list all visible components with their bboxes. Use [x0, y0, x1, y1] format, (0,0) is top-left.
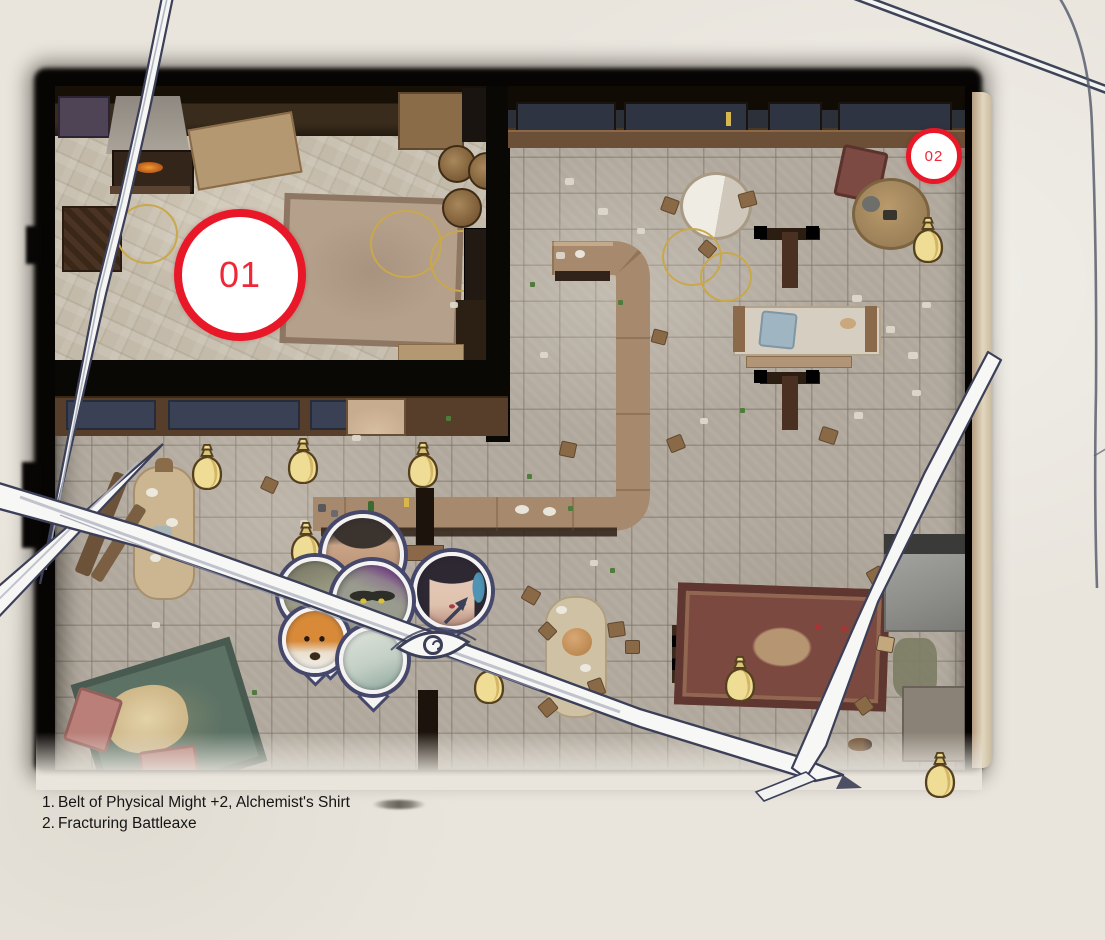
debris [590, 560, 598, 566]
chair [660, 196, 680, 216]
bar-candle [404, 498, 409, 507]
money-bag-icon[interactable] [470, 658, 508, 704]
chair [559, 441, 578, 459]
debris [527, 474, 532, 479]
debris [252, 690, 257, 695]
bar-plate [543, 507, 556, 516]
desk [398, 92, 464, 150]
bar-plate [575, 250, 585, 258]
plate [556, 606, 567, 614]
money-bag-icon[interactable] [909, 217, 947, 263]
table-end [733, 306, 745, 352]
debris [637, 228, 645, 234]
bed-headboard [884, 534, 965, 554]
debris [852, 295, 862, 302]
debris [618, 300, 623, 305]
bar-plate [515, 505, 529, 514]
table-handle [155, 458, 173, 472]
debris [466, 644, 471, 649]
loot-marker-01[interactable]: 01 [174, 209, 306, 341]
table-item [840, 318, 856, 329]
frame-line-right [1057, 0, 1105, 588]
debris [446, 416, 451, 421]
fireplace-mantle [110, 186, 190, 194]
dark-table [62, 206, 122, 272]
legend-number: 2. [42, 815, 55, 832]
money-bag-icon[interactable] [188, 444, 226, 490]
debris [530, 282, 535, 287]
long-table [545, 596, 607, 718]
money-bag-icon[interactable] [721, 656, 759, 702]
bar-bottle [368, 501, 374, 512]
bench [746, 356, 852, 368]
pillar [782, 232, 798, 288]
debris [540, 352, 548, 358]
candle [726, 112, 731, 126]
local-map-page: 0102 1.Belt of Physical Might +2, Alchem… [0, 0, 1105, 940]
chair [625, 640, 640, 654]
legend-number: 1. [42, 794, 55, 811]
debris [230, 560, 239, 566]
pale-creature-portrait[interactable] [339, 626, 407, 694]
legend-label: Belt of Physical Might +2, Alchemist's S… [58, 794, 350, 811]
red-carpet [674, 582, 890, 711]
debris [912, 390, 921, 396]
fallen-chandelier [116, 204, 178, 264]
loot-marker-02[interactable]: 02 [906, 128, 962, 184]
pillar-cap [806, 226, 819, 239]
wall-counter [508, 130, 965, 148]
chair [737, 190, 757, 209]
pillar [782, 376, 798, 430]
pillar-cap [754, 370, 767, 383]
debris [854, 412, 863, 419]
chair [818, 426, 839, 446]
pillar-cap [754, 226, 767, 239]
debris [598, 208, 608, 215]
debris [740, 408, 745, 413]
table-item [883, 210, 897, 220]
money-bag-icon[interactable] [404, 442, 442, 488]
legend-item: 1.Belt of Physical Might +2, Alchemist's… [42, 792, 353, 813]
barrel [442, 188, 482, 228]
chair [260, 475, 280, 494]
debris [565, 178, 574, 185]
debris [152, 622, 160, 628]
table-end [865, 306, 877, 352]
plate [150, 554, 161, 562]
debris [908, 352, 918, 359]
debris [886, 326, 895, 333]
ink-smudge [372, 800, 426, 809]
chair [876, 635, 896, 654]
map-bottom-fade [36, 732, 982, 790]
legend-item: 2.Fracturing Battleaxe [42, 813, 353, 834]
bar-mug [318, 504, 326, 512]
map-surface[interactable] [55, 86, 965, 770]
fireplace-hood [106, 96, 190, 154]
pillow [758, 310, 798, 350]
money-bag-icon[interactable] [284, 438, 322, 484]
fox-portrait[interactable] [282, 607, 348, 673]
table-item [152, 526, 172, 540]
bar-mug [331, 510, 338, 517]
pillar-cap [806, 370, 819, 383]
money-bag-icon[interactable] [921, 752, 959, 798]
bread [562, 628, 592, 656]
map-page-curl [972, 92, 992, 768]
wall-window [66, 400, 156, 430]
chair [607, 621, 626, 638]
debris [700, 418, 708, 424]
fallen-chandelier [700, 252, 752, 302]
female-human-portrait[interactable] [413, 552, 491, 630]
debris [568, 506, 573, 511]
chair [520, 585, 541, 606]
plate [580, 664, 591, 672]
wall-window [168, 400, 300, 430]
debris [556, 252, 565, 259]
debris [352, 435, 361, 441]
table-pot [862, 196, 880, 212]
fire-glow [135, 162, 163, 173]
carpet-dot [815, 624, 821, 630]
loot-legend: 1.Belt of Physical Might +2, Alchemist's… [42, 792, 353, 834]
carpet-dot [841, 626, 847, 632]
cabinet [58, 96, 110, 138]
debris [450, 302, 458, 308]
map-edge-notch [26, 226, 40, 264]
chair [666, 434, 686, 454]
map-edge-notch [22, 462, 40, 548]
debris [610, 568, 615, 573]
plate [146, 488, 158, 497]
debris [922, 302, 931, 308]
long-table [733, 306, 881, 356]
legend-label: Fracturing Battleaxe [58, 815, 197, 832]
